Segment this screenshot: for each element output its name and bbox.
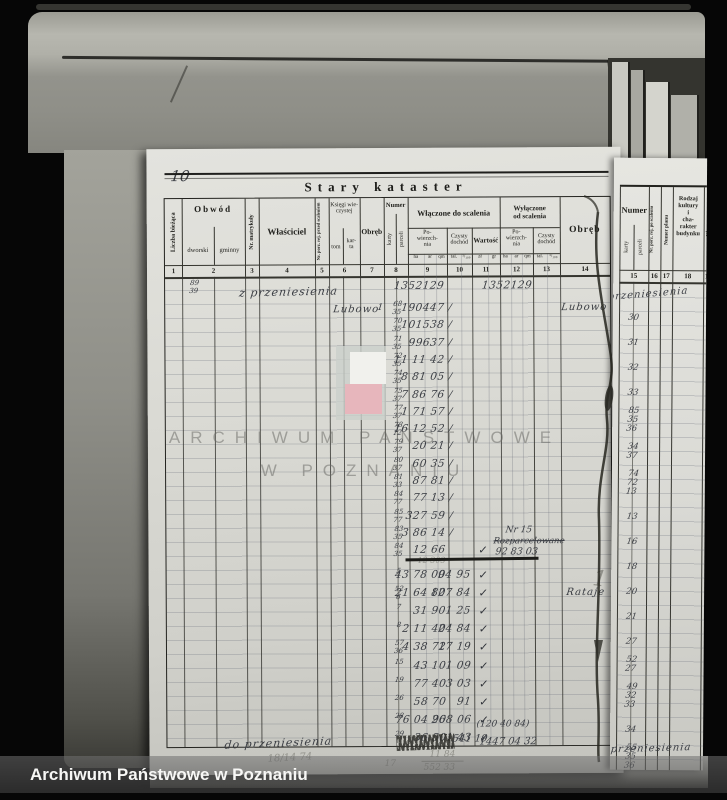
handwritten-row: 2658 7091✓: [149, 695, 623, 715]
watermark-line1: ARCHIWUM PAŃSTWOWE: [140, 421, 590, 454]
colnum-18: 18: [672, 270, 703, 282]
handwritten-row: 52 621 64 80127 84✓Rataje: [149, 587, 623, 607]
film-edge: [36, 4, 691, 10]
note-line1: Nr 15: [505, 525, 533, 536]
board-crack: [62, 56, 662, 63]
crossed-out-total: [396, 734, 455, 751]
handwritten-row: 57 364 38 7217 19✓: [149, 641, 623, 661]
carry-area: 1352129: [336, 281, 444, 293]
handwritten-row: 2876 04 90268 06✓: [149, 714, 623, 734]
page-edge-stack: [608, 58, 705, 166]
backing-board-left: [64, 150, 152, 768]
backing-board-top: [28, 12, 705, 153]
page-edge-strip: [646, 82, 670, 166]
caption-bar: Archiwum Państwowe w Poznaniu: [0, 756, 727, 793]
col16-header: Nr. porz. rej. po scaleniu: [648, 189, 661, 270]
note-line3: 92 83 03: [495, 546, 539, 557]
handwritten-row: 543 78 0094 95✓: [149, 569, 623, 589]
carry-label: z przeniesienia: [238, 285, 338, 298]
handwritten-row: 1543 101 09✓: [149, 659, 623, 679]
col17-header: Numer planu: [660, 189, 673, 270]
archive-watermark: ARCHIWUM PAŃSTWOWE W POZNANIU: [140, 421, 590, 487]
patch-white: [350, 352, 386, 384]
handwritten-row: 82 11 4024 84✓: [149, 623, 623, 643]
carry-obwod: 89 39: [182, 280, 206, 295]
footer-total2: 1447 04 32: [479, 736, 538, 747]
col15b-header: parceli: [633, 225, 648, 270]
col18-header: Rodzaj kultury i cha- rakter budynku: [673, 195, 704, 237]
handwritten-row: 731 901 25✓: [149, 605, 623, 625]
handwritten-row: 1977 403 03✓: [149, 677, 623, 697]
colnum-16: 16: [648, 270, 660, 282]
archival-photo: 10 Stary kataster Liczba bieżąca Obwód d…: [0, 0, 727, 800]
footer-paren-value: (120 40 84): [476, 719, 530, 730]
caption-text: Archiwum Państwowe w Poznaniu: [0, 756, 727, 793]
patch-pink: [345, 384, 382, 414]
colnum-17: 17: [660, 270, 672, 282]
page-edge-strip: [671, 95, 699, 166]
handwritten-row: 2936 501 43✓: [149, 732, 623, 752]
page-edge-strip: [631, 70, 645, 164]
board-crack-branch: [170, 65, 188, 102]
carry-area-excluded: 1352129: [451, 280, 532, 291]
watermark-line2: W POZNANIU: [140, 454, 590, 487]
